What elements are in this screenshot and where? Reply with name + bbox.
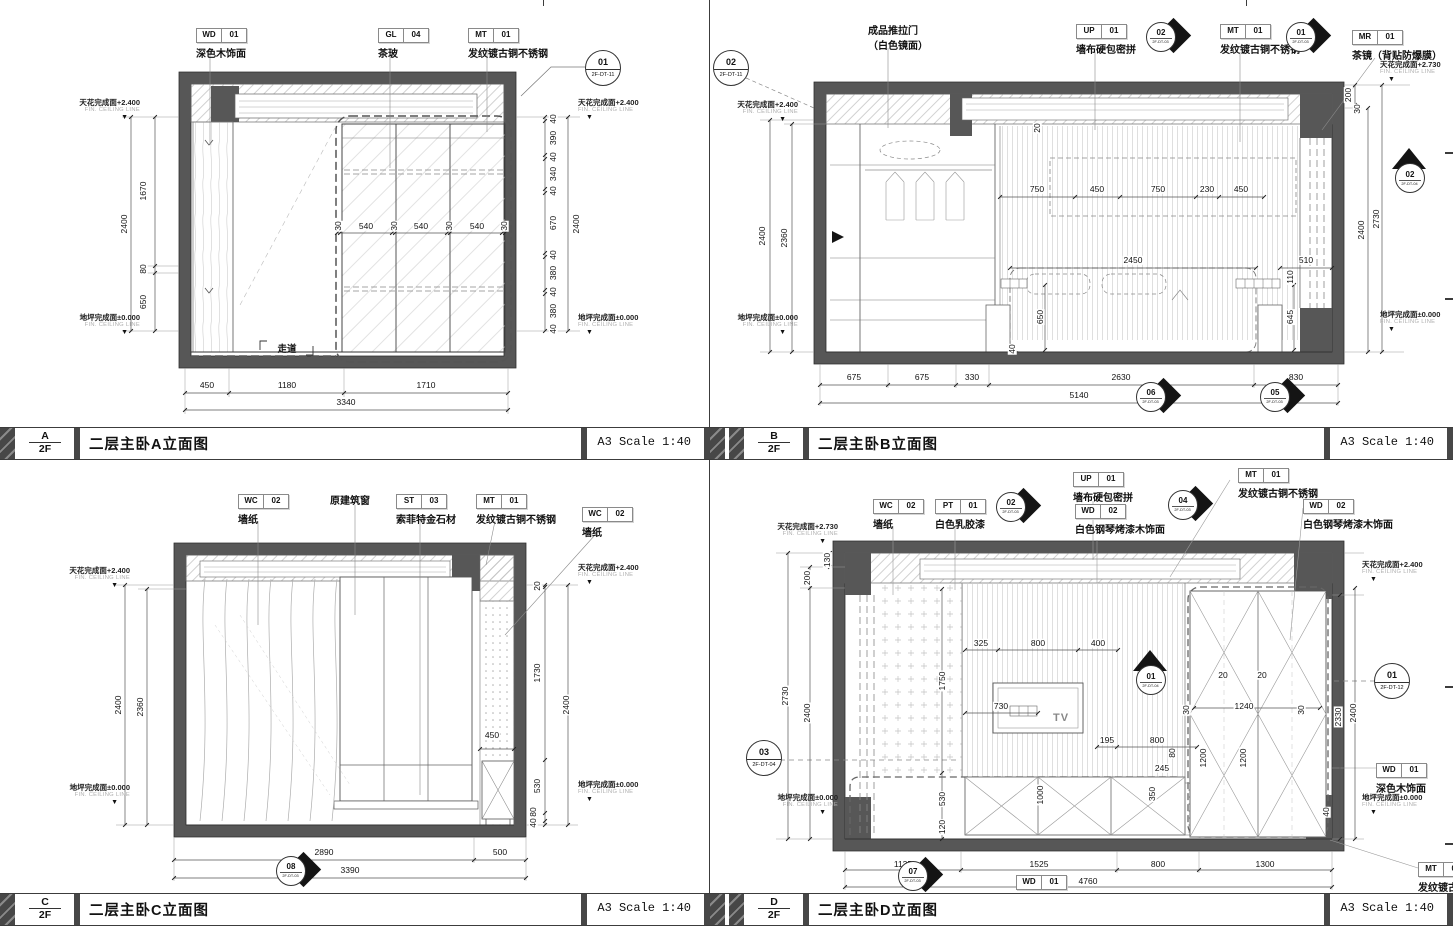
material-name: 原建筑窗 bbox=[330, 492, 370, 507]
level-mark: 天花完成面+2.400FIN. CEILING LINE bbox=[20, 566, 130, 582]
dim-total: 2730 bbox=[1372, 209, 1381, 230]
level-cn: 天花完成面+2.400 bbox=[30, 98, 140, 107]
material-code-num: 01 bbox=[1246, 25, 1270, 38]
edge-tick bbox=[543, 0, 544, 6]
dim: 750 bbox=[1029, 185, 1045, 194]
callout-ref: 2F-DT-03 bbox=[1293, 39, 1309, 43]
material-code: WD01 bbox=[1016, 875, 1067, 890]
dim: 390 bbox=[549, 130, 558, 146]
material-code-type: UP bbox=[1074, 473, 1099, 486]
material-code: WC02 bbox=[873, 499, 924, 514]
title-block-icon bbox=[0, 428, 15, 459]
dim: 30 bbox=[1297, 704, 1306, 715]
callout-ref: 2F-DT-03 bbox=[1143, 399, 1159, 403]
material-code-type: WC bbox=[583, 508, 608, 521]
dim: 645 bbox=[1286, 309, 1295, 325]
material-name: 墙纸 bbox=[238, 511, 289, 526]
level-en: FIN. CEILING LINE bbox=[1362, 802, 1453, 809]
dim: 1180 bbox=[277, 381, 297, 390]
material-code-num: 02 bbox=[1101, 505, 1125, 518]
material-name: 茶玻 bbox=[378, 45, 429, 60]
elevation-floor: 2F bbox=[39, 909, 51, 922]
edge-tick bbox=[1246, 0, 1247, 6]
dim: 800 bbox=[1149, 736, 1165, 745]
level-cn: 天花完成面+2.400 bbox=[578, 563, 688, 572]
material-code-type: ST bbox=[397, 495, 422, 508]
material-code-num: 01 bbox=[1042, 876, 1066, 889]
material-name: 索菲特金石材 bbox=[396, 511, 456, 526]
callout-number: 06 bbox=[1140, 389, 1163, 399]
material-code-type: WC bbox=[239, 495, 264, 508]
dim: 120 bbox=[938, 819, 947, 835]
dim: 230 bbox=[1199, 185, 1215, 194]
callout-ref: 2F-DT-11 bbox=[592, 70, 615, 78]
level-en: FIN. CEILING LINE bbox=[688, 109, 798, 116]
level-mark: 地坪完成面±0.000FIN. CEILING LINE bbox=[728, 793, 838, 809]
level-en: FIN. CEILING LINE bbox=[1362, 569, 1453, 576]
dim: 40 bbox=[549, 286, 558, 297]
level-en: FIN. CEILING LINE bbox=[578, 322, 688, 329]
material-code-type: WD bbox=[1304, 500, 1329, 513]
detail-callout-arrow: 022F-DT-03 bbox=[996, 488, 1038, 524]
callout-ref: 2F-DT-04 bbox=[1402, 181, 1418, 185]
level-en: FIN. CEILING LINE bbox=[728, 531, 838, 538]
title-block-icon bbox=[710, 428, 725, 459]
dim-total: 5140 bbox=[1069, 391, 1090, 400]
callout-ref: 2F-DT-03 bbox=[1267, 399, 1283, 403]
detail-callout-arrow: 072F-DT-03 bbox=[898, 857, 940, 893]
edge-tick bbox=[1445, 152, 1453, 154]
material-code-type: WD bbox=[1377, 764, 1402, 777]
material-code: WC02 bbox=[582, 507, 633, 522]
callout-ref: 2F-DT-03 bbox=[283, 873, 299, 877]
dim: 200 bbox=[1344, 87, 1353, 103]
material-code-num: 01 bbox=[1378, 31, 1402, 44]
material-code: UP01 bbox=[1076, 24, 1127, 39]
dim: 510 bbox=[1298, 256, 1314, 265]
dim: 380 bbox=[549, 303, 558, 319]
material-label-up01: UP01 墙布硬包密拼 bbox=[1073, 468, 1133, 504]
elevation-letter: C bbox=[29, 897, 61, 910]
material-code: MT01 bbox=[476, 494, 527, 509]
material-code-type: WC bbox=[874, 500, 899, 513]
level-cn: 地坪完成面±0.000 bbox=[30, 313, 140, 322]
scale-label: A3 Scale 1:40 bbox=[587, 894, 701, 925]
level-en: FIN. CEILING LINE bbox=[728, 802, 838, 809]
dim: 400 bbox=[1090, 639, 1106, 648]
material-code-num: 02 bbox=[1329, 500, 1353, 513]
callout-number: 03 bbox=[747, 748, 781, 760]
dim: 40 bbox=[549, 151, 558, 162]
dim-total: 2400 bbox=[758, 226, 767, 247]
level-cn: 天花完成面+2.400 bbox=[20, 566, 130, 575]
level-en: FIN. CEILING LINE bbox=[20, 792, 130, 799]
material-code: UP01 bbox=[1073, 472, 1124, 487]
level-mark: 地坪完成面±0.000FIN. CEILING LINE bbox=[30, 313, 140, 329]
dim: 500 bbox=[492, 848, 508, 857]
dim-total: 2400 bbox=[120, 214, 129, 235]
callout-ref: 2F-DT-03 bbox=[905, 878, 921, 882]
level-cn: 地坪完成面±0.000 bbox=[578, 313, 688, 322]
callout-ref: 2F-DT-03 bbox=[1175, 507, 1191, 511]
level-cn: 地坪完成面±0.000 bbox=[688, 313, 798, 322]
panel-title: 二层主卧D立面图 bbox=[809, 894, 947, 925]
level-cn: 天花完成面+2.400 bbox=[578, 98, 688, 107]
dim: 1750 bbox=[938, 671, 947, 692]
material-code-type: WD bbox=[1076, 505, 1101, 518]
dim: 1200 bbox=[1239, 748, 1248, 769]
material-code-num: 01 bbox=[494, 29, 518, 42]
material-code: MT01 bbox=[468, 28, 519, 43]
detail-callout: 032F-DT-04 bbox=[746, 740, 782, 776]
dim: 1730 bbox=[533, 663, 542, 684]
elevation-key: D2F bbox=[748, 894, 800, 925]
note-corridor: 走道 bbox=[277, 341, 296, 355]
callout-number: 02 bbox=[1150, 29, 1173, 39]
material-code-num: 01 bbox=[1099, 473, 1123, 486]
dim: 110 bbox=[1286, 269, 1295, 285]
elevation-key: C2F bbox=[19, 894, 71, 925]
level-en: FIN. CEILING LINE bbox=[1380, 69, 1453, 76]
level-mark: 天花完成面+2.400FIN. CEILING LINE bbox=[688, 100, 798, 116]
dim: 80 bbox=[1168, 747, 1177, 758]
material-label-mr01: MR01 茶镜（背贴防爆膜） bbox=[1352, 26, 1442, 62]
material-code: WD01 bbox=[1376, 763, 1427, 778]
title-block-icon bbox=[729, 894, 744, 925]
dim: 30 bbox=[500, 220, 509, 231]
level-cn: 天花完成面+2.400 bbox=[1362, 560, 1453, 569]
dim: 540 bbox=[469, 222, 485, 231]
title-block-icon bbox=[710, 894, 725, 925]
level-mark: 地坪完成面±0.000FIN. CEILING LINE bbox=[688, 313, 798, 329]
elevation-letter: D bbox=[758, 897, 790, 910]
dim: 20 bbox=[1256, 671, 1267, 680]
material-code-type: MT bbox=[1221, 25, 1246, 38]
title-block-icon bbox=[729, 428, 744, 459]
material-code-num: 02 bbox=[899, 500, 923, 513]
dim-total: 2400 bbox=[1349, 703, 1358, 724]
callout-ref: 2F-DT-12 bbox=[1380, 683, 1403, 691]
elevation-floor: 2F bbox=[768, 909, 780, 922]
panel-title: 二层主卧B立面图 bbox=[809, 428, 947, 459]
divider-bar bbox=[1447, 428, 1453, 459]
dim-total: 2400 bbox=[562, 695, 571, 716]
titlebar-elevation-c: C2F 二层主卧C立面图 A3 Scale 1:40 bbox=[0, 893, 710, 926]
material-code-type: PT bbox=[936, 500, 961, 513]
material-name: 墙纸 bbox=[873, 516, 924, 531]
dim: 380 bbox=[549, 265, 558, 281]
level-mark: 天花完成面+2.400FIN. CEILING LINE bbox=[578, 98, 688, 114]
dim: 1000 bbox=[1036, 785, 1045, 806]
material-label-st03: ST03 索菲特金石材 bbox=[396, 490, 456, 526]
scale-label: A3 Scale 1:40 bbox=[587, 428, 701, 459]
material-code-num: 02 bbox=[264, 495, 288, 508]
material-code-type: WD bbox=[197, 29, 222, 42]
dim-total: 3390 bbox=[340, 866, 361, 875]
dim: 2630 bbox=[1111, 373, 1132, 382]
dim: 40 bbox=[549, 185, 558, 196]
dim: 330 bbox=[964, 373, 980, 382]
level-en: FIN. CEILING LINE bbox=[1380, 319, 1453, 326]
material-name: 白色钢琴烤漆木饰面 bbox=[1075, 521, 1165, 536]
callout-number: 01 bbox=[1140, 673, 1163, 683]
dim: 730 bbox=[993, 702, 1009, 711]
dim: 1525 bbox=[1029, 860, 1050, 869]
material-code: WD02 bbox=[1075, 504, 1126, 519]
dim: 1200 bbox=[1199, 748, 1208, 769]
dim: 80 bbox=[529, 806, 538, 817]
callout-number: 07 bbox=[902, 868, 925, 878]
dim-total: 2400 bbox=[803, 703, 812, 724]
material-label-wd02: WD02 白色钢琴烤漆木饰面 bbox=[1075, 500, 1165, 536]
material-code-num: 01 bbox=[222, 29, 246, 42]
material-code-num: 01 bbox=[502, 495, 526, 508]
dim: 40 bbox=[549, 113, 558, 124]
level-cn: 地坪完成面±0.000 bbox=[20, 783, 130, 792]
material-label-wc02: WC02 墙纸 bbox=[582, 503, 633, 539]
dim: 40 bbox=[529, 817, 538, 828]
level-en: FIN. CEILING LINE bbox=[30, 107, 140, 114]
dim: 20 bbox=[533, 580, 542, 591]
material-code-num: 04 bbox=[404, 29, 428, 42]
level-cn: 天花完成面+2.730 bbox=[1380, 60, 1453, 69]
material-code-type: UP bbox=[1077, 25, 1102, 38]
dim: 1670 bbox=[139, 181, 148, 202]
callout-number: 04 bbox=[1172, 497, 1195, 507]
material-label-wc02: WC02 墙纸 bbox=[873, 495, 924, 531]
material-code: ST03 bbox=[396, 494, 447, 509]
callout-ref: 2F-DT-04 bbox=[752, 760, 775, 768]
material-code: PT01 bbox=[935, 499, 986, 514]
panel-title: 二层主卧C立面图 bbox=[80, 894, 218, 925]
dim: 30 bbox=[1353, 103, 1362, 114]
tv-label: TV bbox=[1053, 712, 1069, 724]
dim: 450 bbox=[199, 381, 215, 390]
dim-total: 4760 bbox=[1078, 877, 1099, 886]
level-en: FIN. CEILING LINE bbox=[578, 572, 688, 579]
material-code-type: MT bbox=[1239, 469, 1264, 482]
level-mark: 天花完成面+2.400FIN. CEILING LINE bbox=[1362, 560, 1453, 576]
detail-callout-triangle: 012F-DT-04 bbox=[1133, 650, 1167, 696]
elevation-letter: A bbox=[29, 431, 61, 444]
material-label-sliding-door: 成品推拉门 （白色镜面） bbox=[868, 20, 928, 52]
level-mark: 天花完成面+2.730FIN. CEILING LINE bbox=[1380, 60, 1453, 76]
level-mark: 地坪完成面±0.000FIN. CEILING LINE bbox=[20, 783, 130, 799]
detail-callout-arrow: 022F-DT-03 bbox=[1146, 18, 1188, 54]
material-code-type: MT bbox=[477, 495, 502, 508]
material-label-up01: UP01 墙布硬包密拼 bbox=[1076, 20, 1136, 56]
scale-label: A3 Scale 1:40 bbox=[1330, 428, 1444, 459]
edge-tick bbox=[1445, 686, 1453, 688]
dim: 245 bbox=[1154, 764, 1170, 773]
dim: 750 bbox=[1150, 185, 1166, 194]
material-code-num: 02 bbox=[608, 508, 632, 521]
detail-callout: 022F-DT-11 bbox=[713, 50, 749, 86]
detail-callout-triangle: 022F-DT-04 bbox=[1392, 148, 1426, 194]
material-code-type: MT bbox=[469, 29, 494, 42]
dim: 675 bbox=[914, 373, 930, 382]
material-code-type: GL bbox=[379, 29, 404, 42]
dim: 450 bbox=[1233, 185, 1249, 194]
dim-total: 2400 bbox=[572, 214, 581, 235]
dim: 40 bbox=[1008, 343, 1017, 354]
callout-number: 05 bbox=[1264, 389, 1287, 399]
material-name: 墙布硬包密拼 bbox=[1076, 41, 1136, 56]
material-code: MT01 bbox=[1220, 24, 1271, 39]
dim: 40 bbox=[549, 323, 558, 334]
material-code-type: MR bbox=[1353, 31, 1378, 44]
dim: 340 bbox=[549, 166, 558, 182]
dim: 195 bbox=[1099, 736, 1115, 745]
dim: 325 bbox=[973, 639, 989, 648]
callout-ref: 2F-DT-03 bbox=[1153, 39, 1169, 43]
level-mark: 地坪完成面±0.000FIN. CEILING LINE bbox=[1380, 310, 1453, 326]
level-mark: 天花完成面+2.400FIN. CEILING LINE bbox=[578, 563, 688, 579]
material-label-window: 原建筑窗 bbox=[330, 490, 370, 507]
material-name: 白色钢琴烤漆木饰面 bbox=[1303, 516, 1393, 531]
title-block-icon bbox=[0, 894, 15, 925]
callout-number: 01 bbox=[1375, 671, 1409, 683]
level-cn: 地坪完成面±0.000 bbox=[1380, 310, 1453, 319]
divider-bar bbox=[1447, 894, 1453, 925]
detail-callout-arrow: 062F-DT-03 bbox=[1136, 378, 1178, 414]
level-en: FIN. CEILING LINE bbox=[20, 575, 130, 582]
level-mark: 地坪完成面±0.000FIN. CEILING LINE bbox=[578, 313, 688, 329]
dim: 530 bbox=[938, 791, 947, 807]
scale-label: A3 Scale 1:40 bbox=[1330, 894, 1444, 925]
dim: 1240 bbox=[1234, 702, 1255, 711]
material-label-mt01: MT01 发纹镀古铜不锈钢 bbox=[468, 24, 548, 60]
elevation-floor: 2F bbox=[39, 443, 51, 456]
dim-total: 2730 bbox=[781, 686, 790, 707]
material-label-wd02: WD02 白色钢琴烤漆木饰面 bbox=[1303, 495, 1393, 531]
detail-callout-arrow: 082F-DT-03 bbox=[276, 852, 318, 888]
level-en: FIN. CEILING LINE bbox=[578, 789, 688, 796]
panel-title: 二层主卧A立面图 bbox=[80, 428, 218, 459]
callout-number: 08 bbox=[280, 863, 303, 873]
detail-callout-arrow: 012F-DT-03 bbox=[1286, 18, 1328, 54]
callout-number: 01 bbox=[1290, 29, 1313, 39]
callout-number: 01 bbox=[586, 58, 620, 70]
level-en: FIN. CEILING LINE bbox=[688, 322, 798, 329]
material-label-wc02: WC02 墙纸 bbox=[238, 490, 289, 526]
level-cn: 天花完成面+2.730 bbox=[728, 522, 838, 531]
callout-ref: 2F-DT-03 bbox=[1003, 509, 1019, 513]
detail-callout-arrow: 042F-DT-03 bbox=[1168, 486, 1210, 522]
material-label-pt01: PT01 白色乳胶漆 bbox=[935, 495, 986, 531]
level-mark: 地坪完成面±0.000FIN. CEILING LINE bbox=[1362, 793, 1453, 809]
material-label-gl04: GL04 茶玻 bbox=[378, 24, 429, 60]
titlebar-elevation-a: A2F 二层主卧A立面图 A3 Scale 1:40 bbox=[0, 427, 710, 460]
dim: 540 bbox=[358, 222, 374, 231]
dim: 200 bbox=[803, 570, 812, 586]
dim: 30 bbox=[1182, 704, 1191, 715]
material-label-mt01: MT01 发纹镀古铜不锈钢 bbox=[476, 490, 556, 526]
dim: 1710 bbox=[416, 381, 437, 390]
dim: 30 bbox=[445, 220, 454, 231]
dim: 40 bbox=[549, 249, 558, 260]
material-name: 墙纸 bbox=[582, 524, 633, 539]
material-label-wd01: WD01 深色木饰面 bbox=[196, 24, 247, 60]
level-en: FIN. CEILING LINE bbox=[578, 107, 688, 114]
material-name: 深色木饰面 bbox=[196, 45, 247, 60]
material-label-wd01: WD01 深色木饰面 bbox=[1376, 759, 1427, 795]
elevation-letter: B bbox=[758, 431, 790, 444]
dim: 540 bbox=[413, 222, 429, 231]
dim: 2360 bbox=[136, 697, 145, 718]
material-code: MT01 bbox=[1238, 468, 1289, 483]
callout-number: 02 bbox=[1399, 171, 1422, 181]
dim: 530 bbox=[533, 778, 542, 794]
dim: 675 bbox=[846, 373, 862, 382]
material-code-type: MT bbox=[1419, 863, 1444, 876]
dim: 30 bbox=[334, 220, 343, 231]
level-cn: 地坪完成面±0.000 bbox=[578, 780, 688, 789]
material-code-num: 01 bbox=[1264, 469, 1288, 482]
dim-total: 3340 bbox=[336, 398, 357, 407]
material-code: WD02 bbox=[1303, 499, 1354, 514]
dim: 1300 bbox=[1255, 860, 1276, 869]
dim: 450 bbox=[1089, 185, 1105, 194]
dim: 20 bbox=[1217, 671, 1228, 680]
callout-ref: 2F-DT-11 bbox=[720, 70, 743, 78]
level-cn: 地坪完成面±0.000 bbox=[1362, 793, 1453, 802]
detail-callout-arrow: 052F-DT-03 bbox=[1260, 378, 1302, 414]
material-code-num: 03 bbox=[422, 495, 446, 508]
level-cn: 地坪完成面±0.000 bbox=[728, 793, 838, 802]
material-name: 成品推拉门 bbox=[868, 22, 928, 37]
material-code-num: 01 bbox=[1402, 764, 1426, 777]
titlebar-elevation-b: B2F 二层主卧B立面图 A3 Scale 1:40 bbox=[710, 427, 1453, 460]
callout-ref: 2F-DT-04 bbox=[1143, 683, 1159, 687]
dim-total: 2400 bbox=[114, 695, 123, 716]
material-code-num: 01 bbox=[1444, 863, 1453, 876]
material-code: MR01 bbox=[1352, 30, 1403, 45]
dim: 450 bbox=[484, 731, 500, 740]
detail-callout: 012F-DT-11 bbox=[585, 50, 621, 86]
elevation-sheet: { "sheet": { "scale_label": "A3 Scale 1:… bbox=[0, 0, 1453, 918]
material-name: 发纹镀古铜不锈钢 bbox=[476, 511, 556, 526]
dim: 30 bbox=[390, 220, 399, 231]
level-cn: 天花完成面+2.400 bbox=[688, 100, 798, 109]
elevation-key: B2F bbox=[748, 428, 800, 459]
edge-tick bbox=[1445, 843, 1453, 845]
titlebar-elevation-d: D2F 二层主卧D立面图 A3 Scale 1:40 bbox=[710, 893, 1453, 926]
material-code: MT01 bbox=[1418, 862, 1453, 877]
dim-total: 2400 bbox=[1357, 220, 1366, 241]
level-mark: 天花完成面+2.400FIN. CEILING LINE bbox=[30, 98, 140, 114]
material-code: GL04 bbox=[378, 28, 429, 43]
material-code: WC02 bbox=[238, 494, 289, 509]
level-en: FIN. CEILING LINE bbox=[30, 322, 140, 329]
material-name: 白色乳胶漆 bbox=[935, 516, 986, 531]
dim: 350 bbox=[1148, 786, 1157, 802]
material-code: WD01 bbox=[196, 28, 247, 43]
elevation-floor: 2F bbox=[768, 443, 780, 456]
dim: 800 bbox=[1150, 860, 1166, 869]
callout-number: 02 bbox=[714, 58, 748, 70]
material-name: （白色镜面） bbox=[868, 37, 928, 52]
material-label-mt01: MT01 发纹镀古铜不锈钢 bbox=[1418, 858, 1453, 894]
material-code-type: WD bbox=[1017, 876, 1042, 889]
dim: 2360 bbox=[780, 228, 789, 249]
dim: 130 bbox=[823, 552, 832, 568]
level-mark: 地坪完成面±0.000FIN. CEILING LINE bbox=[578, 780, 688, 796]
dim: 20 bbox=[1033, 122, 1042, 133]
material-code-num: 01 bbox=[1102, 25, 1126, 38]
dim: 650 bbox=[139, 294, 148, 310]
level-mark: 天花完成面+2.730FIN. CEILING LINE bbox=[728, 522, 838, 538]
